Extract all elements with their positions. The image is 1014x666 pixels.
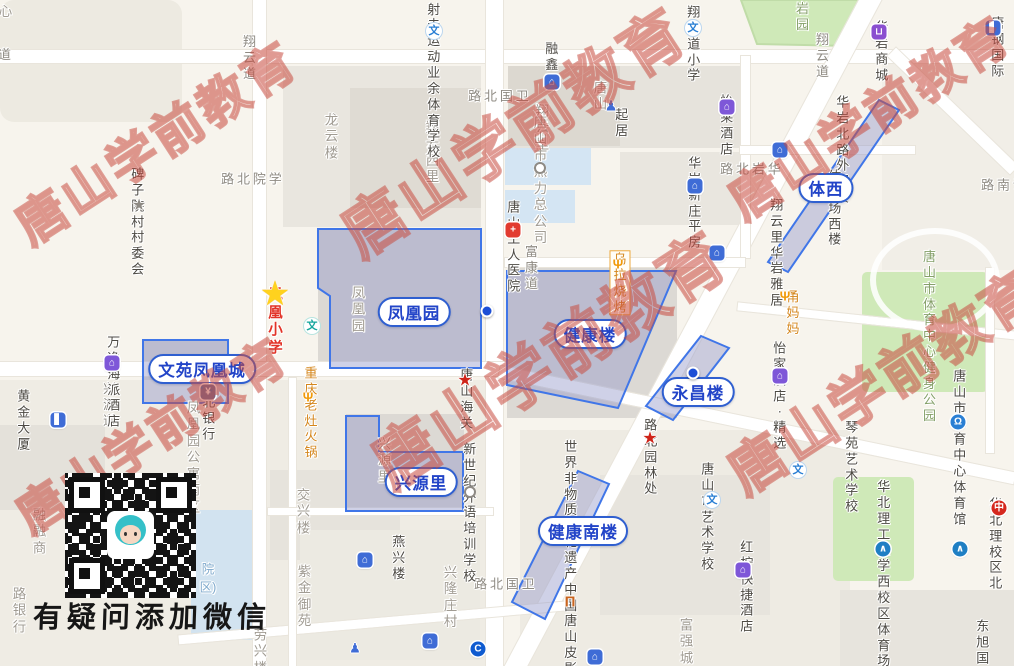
star-red-icon[interactable]: ★ xyxy=(642,430,657,447)
road-label-xueyuan-north-rd: 学院北路 xyxy=(218,172,281,188)
house-icon[interactable]: ⌂ xyxy=(588,650,603,665)
star-gray-icon[interactable]: ★ xyxy=(132,198,146,214)
campus-label-partial-1: 院 xyxy=(202,562,215,577)
bus-stop-dot[interactable] xyxy=(687,367,700,380)
park-label-huayanyuan: 华岩园 xyxy=(796,0,810,33)
poi-chongqing-hotpot[interactable]: 重庆老灶火锅 xyxy=(304,365,317,460)
wechat-caption: 有疑问添加微信 xyxy=(32,594,271,636)
university-icon[interactable]: ∧ xyxy=(876,542,891,557)
building-icon[interactable]: ▋ xyxy=(986,21,1001,36)
qr-finder-pattern xyxy=(69,477,105,513)
poi-qinyuan-art-school[interactable]: 琴苑艺术学校 xyxy=(845,419,859,514)
bus-stop-dot[interactable] xyxy=(481,305,494,318)
lbl-jiaoxinglou: 交兴楼 xyxy=(297,487,312,536)
school-icon[interactable]: 文 xyxy=(704,492,720,508)
hotel-icon[interactable]: ⌂ xyxy=(105,356,120,371)
estate-wenyuan-fenghuangcheng[interactable]: 文苑凤凰城 xyxy=(148,354,256,384)
city-block xyxy=(346,414,464,512)
road-label-jianshe-south-rd: 建设南路 xyxy=(978,178,1014,194)
poi-shadow-puppet-hall[interactable]: 世界非物质文化遗 产中国唐山皮影展厅 xyxy=(564,439,578,666)
lbl-longyunlou: 龙云楼 xyxy=(325,112,340,161)
road-label-fukangdao: 富康道 xyxy=(525,244,541,292)
stadium-icon[interactable]: Ω xyxy=(951,415,966,430)
wechat-avatar xyxy=(107,511,154,559)
hotel-icon[interactable]: ⌂ xyxy=(720,100,735,115)
restaurant-icon[interactable]: Ψ xyxy=(613,257,624,272)
lbl-zijin-yuyuan: 紫金御苑 xyxy=(298,564,313,630)
road-huayan-north xyxy=(741,56,750,258)
poi-tangshan-workers-hospital[interactable]: 唐山工人医院 xyxy=(507,199,521,294)
poi-yanxinglou[interactable]: 燕兴楼 xyxy=(392,534,406,582)
road-lane xyxy=(740,146,915,154)
poi-beiziyuan-village-committee[interactable]: 碑子院村村委会 xyxy=(131,166,145,277)
star-marker[interactable]: ★ xyxy=(260,277,290,311)
estate-jiankang-nanlou[interactable]: 健康南楼 xyxy=(538,516,628,546)
restaurant-icon[interactable]: Ψ xyxy=(780,289,791,304)
avatar-eye xyxy=(124,532,127,536)
poi-yijia-hotel[interactable]: 怡家酒店·精选 xyxy=(773,340,787,451)
bank-icon[interactable]: ¥ xyxy=(201,385,216,400)
building-icon[interactable]: ▋ xyxy=(51,413,66,428)
poi-dongxu-international[interactable]: 东旭国际中 xyxy=(976,618,990,666)
museum-icon[interactable]: Π xyxy=(565,595,576,610)
road-label-weiguo-north-rd-top: 卫国北路 xyxy=(465,89,528,105)
hotel-icon[interactable]: ⌂ xyxy=(736,563,751,578)
estate-tixi[interactable]: 体西 xyxy=(799,173,854,203)
wechat-qr-code xyxy=(65,473,196,598)
lbl-xinglongzhuang-village: 兴隆庄村 xyxy=(444,565,459,631)
school-icon[interactable]: 文 xyxy=(685,20,701,36)
poi-new-century-language-school[interactable]: 新世纪外 语培训学校 xyxy=(463,442,477,585)
lbl-fenghuangyuan-gray: 凤凰园 xyxy=(352,285,367,334)
restaurant-icon[interactable]: Ψ xyxy=(303,390,314,405)
qr-finder-pattern xyxy=(69,558,105,594)
lbl-heating-company: 唐山市热力总公司 xyxy=(534,115,549,247)
lbl-fuqiangcheng: 富强城 xyxy=(680,617,695,666)
estate-xingyuanli[interactable]: 兴源里 xyxy=(385,467,458,497)
house-icon[interactable]: ⌂ xyxy=(358,553,373,568)
road-label-weiguo-north-rd-bottom: 卫国北路 xyxy=(471,577,534,593)
poi-wanyi-haipai-hotel[interactable]: 万逸海派酒店 xyxy=(107,334,121,429)
poi-sports-center-gym[interactable]: 唐山市体育 中心体育馆 xyxy=(953,369,967,528)
house-icon[interactable]: ⌂ xyxy=(423,634,438,649)
house-icon[interactable]: ⌂ xyxy=(688,179,703,194)
road-label-huayan-north-rd: 华岩北路 xyxy=(717,162,780,178)
poi-huayan-xinzhuang[interactable]: 华岩新庄平房 xyxy=(688,155,702,250)
house-icon[interactable]: ⌂ xyxy=(773,143,788,158)
house-icon[interactable]: ⌂ xyxy=(710,246,725,261)
road-xueyuan-north xyxy=(253,0,266,666)
school-icon[interactable]: 文 xyxy=(426,23,442,39)
road-label-xiangyundao-east: 翔云道 xyxy=(816,32,832,80)
poi-tangshan-art-school[interactable]: 唐山市艺术学校 xyxy=(701,461,715,572)
house-icon[interactable]: ⌂ xyxy=(545,75,560,90)
avatar-eye xyxy=(134,532,137,536)
qr-finder-pattern xyxy=(156,477,192,513)
statue-icon[interactable]: ♟ xyxy=(349,641,361,656)
lbl-xin-partial: 心 xyxy=(0,4,13,20)
hospital-icon[interactable]: + xyxy=(506,223,521,238)
school-icon[interactable]: 文 xyxy=(790,462,806,478)
university-icon[interactable]: ∧ xyxy=(953,542,968,557)
training-circle-icon[interactable] xyxy=(464,486,476,498)
star-red-icon[interactable]: ★ xyxy=(457,372,472,389)
poi-ring-icon[interactable] xyxy=(534,162,546,174)
road-label-xiangyundao-west: 翔云道 xyxy=(243,34,259,82)
lbl-bank-partial: 路银行 xyxy=(13,586,28,635)
bank-of-china-icon[interactable]: 中 xyxy=(992,501,1007,516)
city-block xyxy=(350,88,481,208)
estate-yongchanglou[interactable]: 永昌楼 xyxy=(662,377,735,407)
estate-fenghuangyuan[interactable]: 凤凰园 xyxy=(378,297,451,327)
hotel-icon[interactable]: ⌂ xyxy=(773,369,788,384)
park-label-sports-center-park: 唐山市体育 中心健身公园 xyxy=(923,249,937,423)
shopping-bag-icon[interactable]: ⊔ xyxy=(872,25,887,40)
road-xiangyundao xyxy=(0,50,1014,63)
lbl-rongrongshang-partial: 融融商 xyxy=(33,507,48,556)
school-icon-teal[interactable]: 文 xyxy=(304,318,320,334)
ccb-bank-icon[interactable]: C xyxy=(471,642,486,657)
road-label-dao-partial: 道 xyxy=(0,47,14,63)
poi-hongning-hotel[interactable]: 红柠快捷酒店 xyxy=(740,539,754,634)
map-canvas[interactable]: 翔云西里翔云里龙云楼唐山市热力总公司凤凰园凤凰园公寓南区兴源里交兴楼紫金御苑兴隆… xyxy=(0,0,1014,666)
poi-xiangyundao-primary-school[interactable]: 翔云道小学 xyxy=(687,4,701,83)
poi-ncst-west-stadium[interactable]: 华北理工大学 西校区体育场 xyxy=(877,479,891,666)
poi-huangjin-building[interactable]: 黄金大厦 xyxy=(17,388,31,451)
estate-jiankanglou[interactable]: 健康楼 xyxy=(554,319,627,349)
road-lane xyxy=(289,378,296,666)
statue-icon[interactable]: ♟ xyxy=(605,99,618,114)
